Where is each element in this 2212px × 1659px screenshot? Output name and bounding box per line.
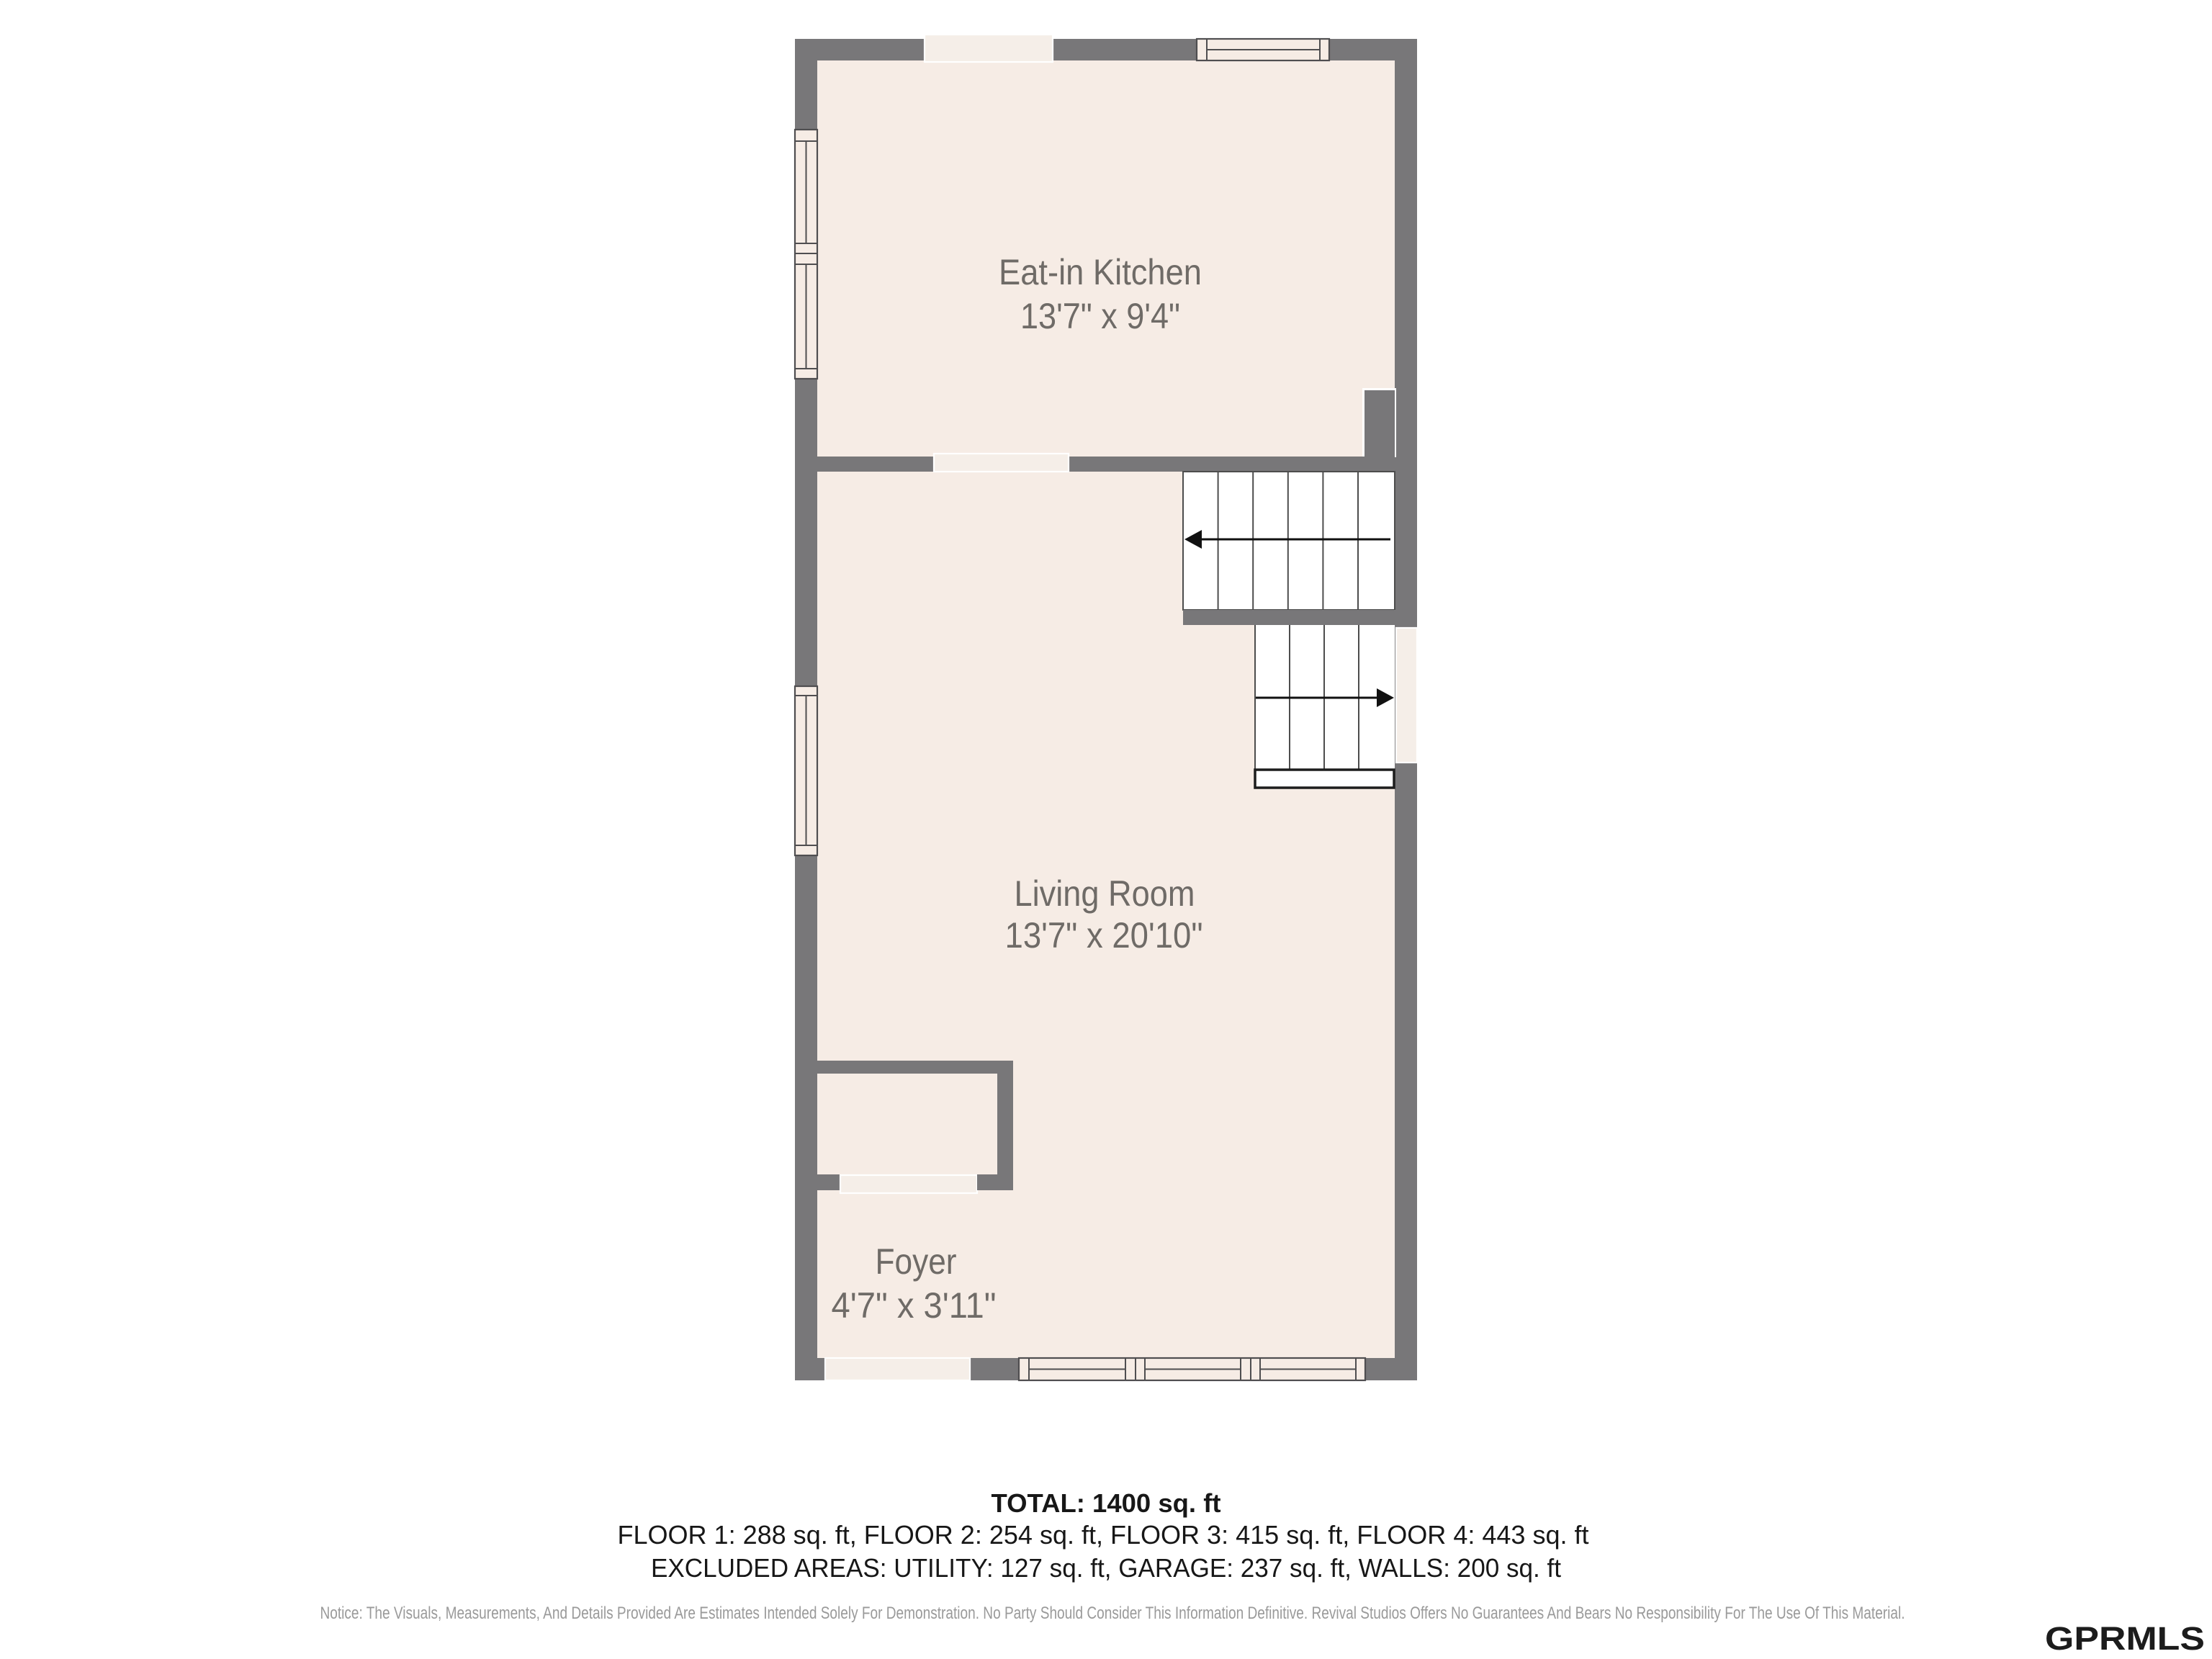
svg-text:EXCLUDED AREAS: UTILITY: 127 s: EXCLUDED AREAS: UTILITY: 127 sq. ft, GAR… <box>651 1553 1561 1583</box>
svg-text:4'7" x 3'11": 4'7" x 3'11" <box>832 1285 997 1326</box>
svg-text:TOTAL: 1400 sq. ft: TOTAL: 1400 sq. ft <box>992 1488 1221 1518</box>
svg-text:Foyer: Foyer <box>876 1241 957 1282</box>
svg-text:13'7" x 20'10": 13'7" x 20'10" <box>1005 915 1203 956</box>
svg-text:FLOOR 1: 288 sq. ft, FLOOR 2:: FLOOR 1: 288 sq. ft, FLOOR 2: 254 sq. ft… <box>618 1520 1589 1550</box>
svg-text:Eat-in Kitchen: Eat-in Kitchen <box>999 252 1202 292</box>
svg-text:Living Room: Living Room <box>1015 873 1195 914</box>
svg-text:Notice: The Visuals, Measureme: Notice: The Visuals, Measurements, And D… <box>320 1604 1905 1623</box>
svg-text:13'7" x 9'4": 13'7" x 9'4" <box>1020 296 1180 336</box>
svg-text:GPRMLS: GPRMLS <box>2045 1620 2205 1657</box>
